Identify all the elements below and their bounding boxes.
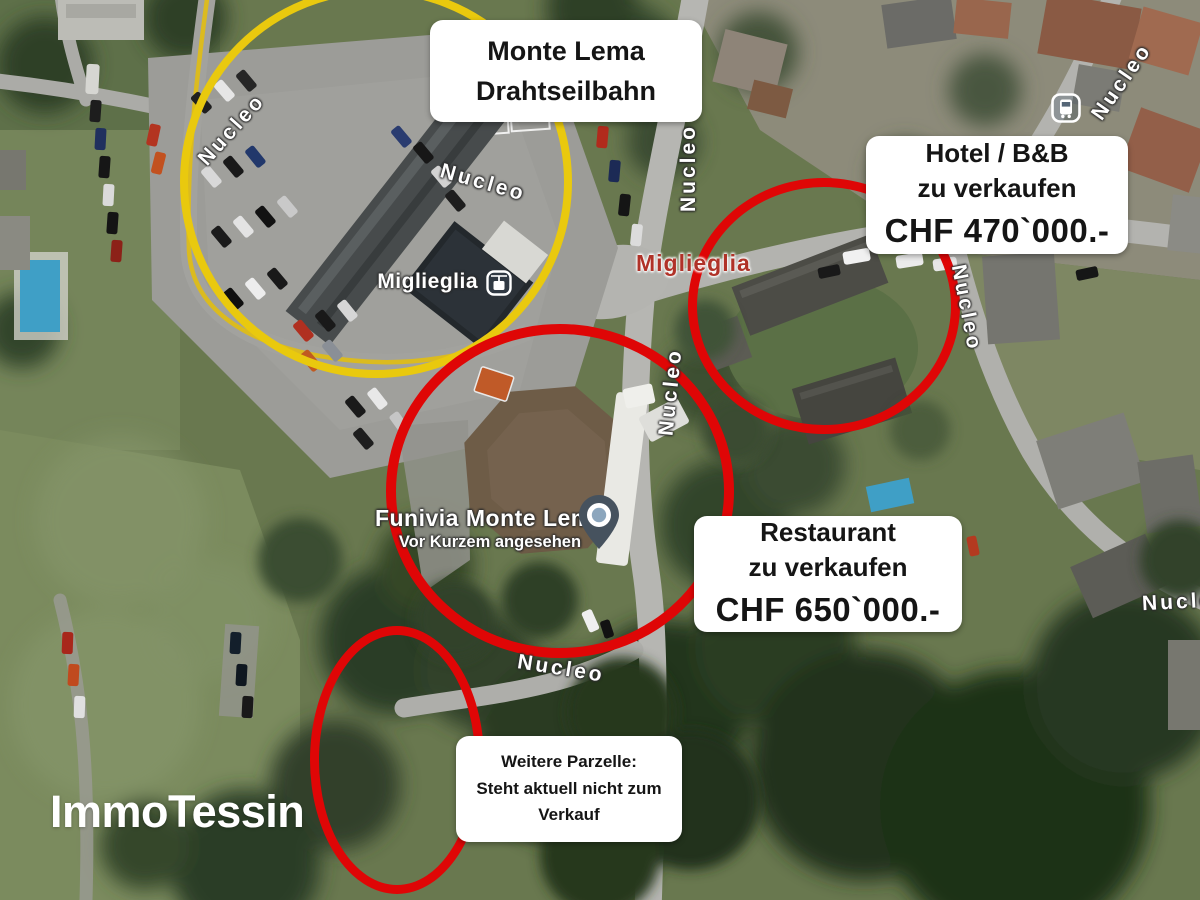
restaurant-note-price: CHF 650`000.- bbox=[716, 588, 941, 633]
map-pin-icon bbox=[578, 494, 620, 550]
immotessin-logo: ImmoTessin bbox=[50, 786, 304, 838]
parcel-note-line2: Steht aktuell nicht zum bbox=[476, 776, 661, 802]
parcel-note-line1: Weitere Parzelle: bbox=[501, 749, 637, 775]
hotel-note-line2: zu verkaufen bbox=[918, 171, 1077, 206]
town-label-miglieglia: Miglieglia bbox=[636, 250, 751, 277]
station-label-miglieglia: Miglieglia bbox=[318, 270, 478, 294]
street-label-nucleo-8: Nucleo bbox=[1141, 588, 1200, 617]
parcel-note-line3: Verkauf bbox=[538, 802, 599, 828]
street-label-nucleo-3: Nucleo bbox=[677, 124, 701, 212]
cable-car-note-line2: Drahtseilbahn bbox=[476, 71, 656, 112]
gondola-icon bbox=[486, 270, 512, 301]
restaurant-note-line1: Restaurant bbox=[760, 515, 896, 550]
map-canvas: Nucleo Nucleo Nucleo Nucleo Nucleo Nucle… bbox=[0, 0, 1200, 900]
hotel-note: Hotel / B&B zu verkaufen CHF 470`000.- bbox=[866, 136, 1128, 254]
cable-car-note-line1: Monte Lema bbox=[487, 31, 645, 72]
parcel-note: Weitere Parzelle: Steht aktuell nicht zu… bbox=[456, 736, 682, 842]
restaurant-note: Restaurant zu verkaufen CHF 650`000.- bbox=[694, 516, 962, 632]
cable-car-note: Monte Lema Drahtseilbahn bbox=[430, 20, 702, 122]
bus-stop-icon bbox=[1051, 93, 1081, 128]
hotel-note-price: CHF 470`000.- bbox=[885, 209, 1110, 254]
restaurant-note-line2: zu verkaufen bbox=[749, 550, 908, 585]
hotel-note-line1: Hotel / B&B bbox=[926, 136, 1069, 171]
